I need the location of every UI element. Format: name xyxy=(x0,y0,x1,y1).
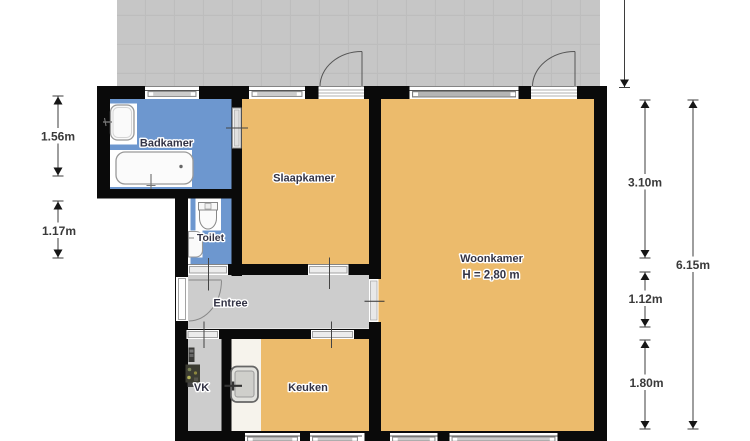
svg-text:Keuken: Keuken xyxy=(288,382,328,394)
svg-text:H = 2,80 m: H = 2,80 m xyxy=(462,270,519,282)
svg-text:6.15m: 6.15m xyxy=(676,258,710,272)
svg-text:1.17m: 1.17m xyxy=(42,224,76,238)
svg-text:1.80m: 1.80m xyxy=(629,376,663,390)
svg-text:1.56m: 1.56m xyxy=(41,129,75,143)
svg-text:Toilet: Toilet xyxy=(197,232,225,244)
svg-text:Badkamer: Badkamer xyxy=(140,138,194,150)
svg-text:Entree: Entree xyxy=(213,298,247,310)
svg-text:Woonkamer: Woonkamer xyxy=(460,253,523,265)
svg-text:1.12m: 1.12m xyxy=(628,292,662,306)
svg-text:3.10m: 3.10m xyxy=(628,175,662,189)
svg-text:Slaapkamer: Slaapkamer xyxy=(273,173,335,185)
svg-text:VK: VK xyxy=(194,382,209,394)
